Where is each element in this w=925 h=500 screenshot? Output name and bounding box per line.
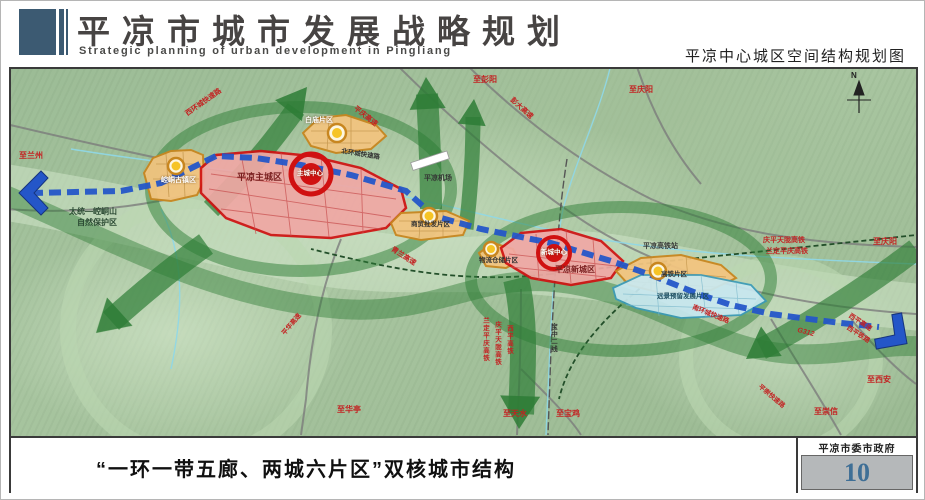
compass-icon — [847, 81, 871, 113]
structure-caption: “一环一带五廊、两城六片区”双核城市结构 — [96, 453, 516, 482]
zone-label-reserve: 远景预留发展片区 — [657, 293, 709, 300]
header: 平凉市城市发展战略规划 Strategic planning of urban … — [1, 1, 925, 66]
header-logo-block — [19, 9, 56, 55]
rail-label-ldpq-east: 兰定平庆高铁 — [766, 248, 808, 256]
rail-label-baozhong: 宝中二线 — [549, 323, 556, 353]
rail-label-ldpq-vert: 兰定平庆高铁 — [481, 317, 488, 362]
zone-label-baimiao: 白庙片区 — [305, 117, 333, 125]
center-label-main: 主城中心 — [297, 170, 323, 177]
rail-label-xiping-hsr: 西平高铁 — [505, 325, 512, 355]
center-label-new: 新城中心 — [541, 249, 567, 256]
map-title: 平凉中心城区空间结构规划图 — [685, 45, 906, 66]
direction-xian: 至西安 — [867, 375, 891, 384]
zone-label-trade: 商贸批发片区 — [411, 221, 450, 228]
document-subtitle-en: Strategic planning of urban development … — [79, 45, 452, 57]
zone-label-main-city: 平凉主城区 — [237, 172, 282, 182]
map-frame: N 至兰州 至彭阳 至庆阳 至庆阳 至西安 至崇信 至华亭 至天水 至宝鸡 崆峒… — [9, 67, 918, 493]
footer-band: “一环一带五廊、两城六片区”双核城市结构 平凉市委市政府 10 — [11, 436, 916, 493]
nature-reserve-label-2: 自然保护区 — [77, 218, 117, 227]
rail-label-qptl-east: 庆平天陇高铁 — [763, 237, 805, 245]
direction-pengyang: 至彭阳 — [473, 75, 497, 84]
direction-qingyang-top: 至庆阳 — [629, 85, 653, 94]
rail-label-qptl-vert: 庆平天陇高铁 — [493, 321, 500, 366]
header-accent-bar-thin — [66, 9, 68, 55]
planning-document-page: 平凉市城市发展战略规划 Strategic planning of urban … — [0, 0, 925, 500]
header-accent-bar — [59, 9, 64, 55]
page-number: 10 — [801, 455, 913, 490]
nature-reserve-label-1: 太统—崆峒山 — [69, 207, 117, 216]
zone-label-new-city: 平凉新城区 — [555, 265, 595, 274]
planning-map: N 至兰州 至彭阳 至庆阳 至庆阳 至西安 至崇信 至华亭 至天水 至宝鸡 崆峒… — [11, 69, 916, 436]
page-number-box: 平凉市委市政府 10 — [796, 438, 916, 493]
compass-n-label: N — [851, 71, 857, 80]
airport-label: 平凉机场 — [424, 175, 452, 183]
direction-huating: 至华亭 — [337, 405, 361, 414]
direction-qingyang-east: 至庆阳 — [873, 237, 897, 246]
direction-chongxin: 至崇信 — [814, 407, 838, 416]
hsr-station-label: 平凉高铁站 — [643, 243, 678, 251]
zone-label-logistics: 物流仓储片区 — [479, 257, 518, 264]
government-label: 平凉市委市政府 — [798, 438, 916, 455]
direction-tianshui: 至天水 — [503, 409, 527, 418]
direction-baoji: 至宝鸡 — [556, 409, 580, 418]
zone-label-kongtong: 崆峒古镇区 — [161, 177, 196, 185]
direction-lanzhou: 至兰州 — [19, 151, 43, 160]
zone-label-hsr: 高铁片区 — [661, 271, 687, 278]
